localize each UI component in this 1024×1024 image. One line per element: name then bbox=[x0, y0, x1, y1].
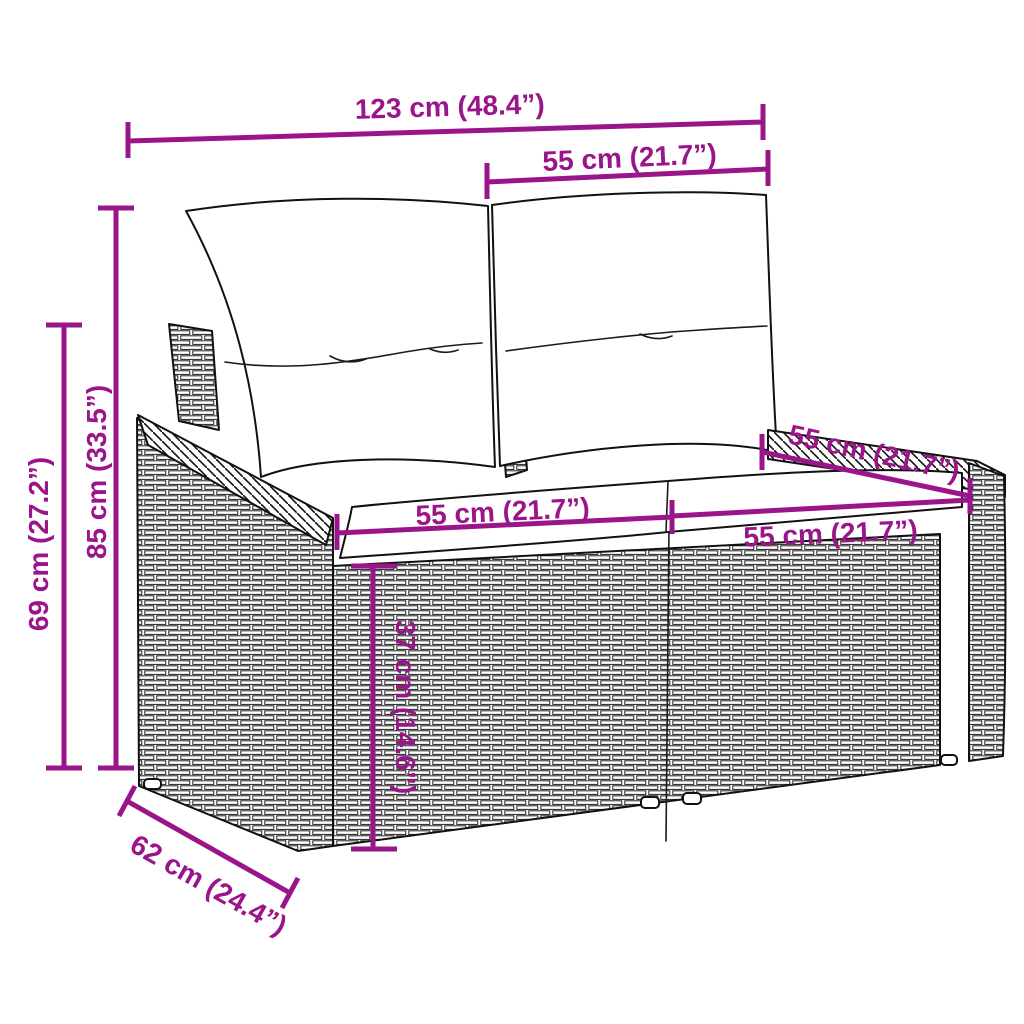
dimension-diagram: 123 cm (48.4”) 55 cm (21.7”) 85 cm (33.5… bbox=[0, 0, 1024, 1024]
dim-height-total-label: 85 cm (33.5”) bbox=[81, 385, 112, 559]
base-front bbox=[333, 534, 940, 846]
armrest-right-column bbox=[969, 463, 1005, 761]
diagram-canvas: 123 cm (48.4”) 55 cm (21.7”) 85 cm (33.5… bbox=[0, 0, 1024, 1024]
back-pillow-right bbox=[492, 192, 777, 466]
foot-middle-left bbox=[641, 797, 659, 808]
dim-height-arm-label: 69 cm (27.2”) bbox=[23, 457, 54, 631]
dim-seat-height-label: 37 cm (14.6”) bbox=[390, 620, 421, 794]
foot-middle-right bbox=[683, 793, 701, 804]
foot-left bbox=[144, 779, 161, 789]
back-post-left bbox=[169, 324, 219, 430]
back-pillow-left bbox=[186, 199, 495, 477]
dim-total-width-label: 123 cm (48.4”) bbox=[354, 88, 545, 125]
foot-right bbox=[941, 755, 957, 765]
